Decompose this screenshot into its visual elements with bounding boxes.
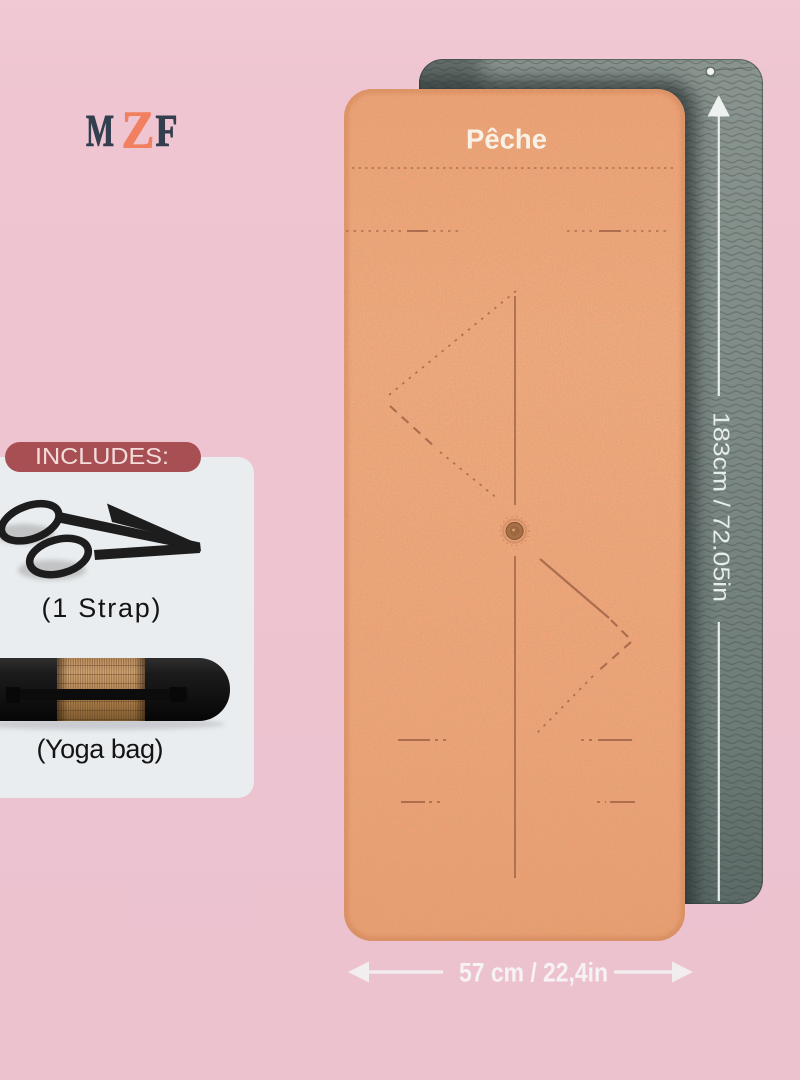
svg-text:INCLUDES:: INCLUDES: xyxy=(35,443,169,469)
svg-text:(Yoga bag): (Yoga bag) xyxy=(37,734,164,764)
svg-text:183cm / 72.05in: 183cm / 72.05in xyxy=(709,412,735,602)
svg-text:Pêche: Pêche xyxy=(466,124,547,155)
svg-text:F: F xyxy=(156,106,178,156)
svg-text:(1 Strap): (1 Strap) xyxy=(42,593,161,623)
svg-text:M: M xyxy=(86,106,114,156)
svg-text:57 cm / 22,4in: 57 cm / 22,4in xyxy=(459,958,608,988)
svg-text:Z: Z xyxy=(122,102,155,160)
